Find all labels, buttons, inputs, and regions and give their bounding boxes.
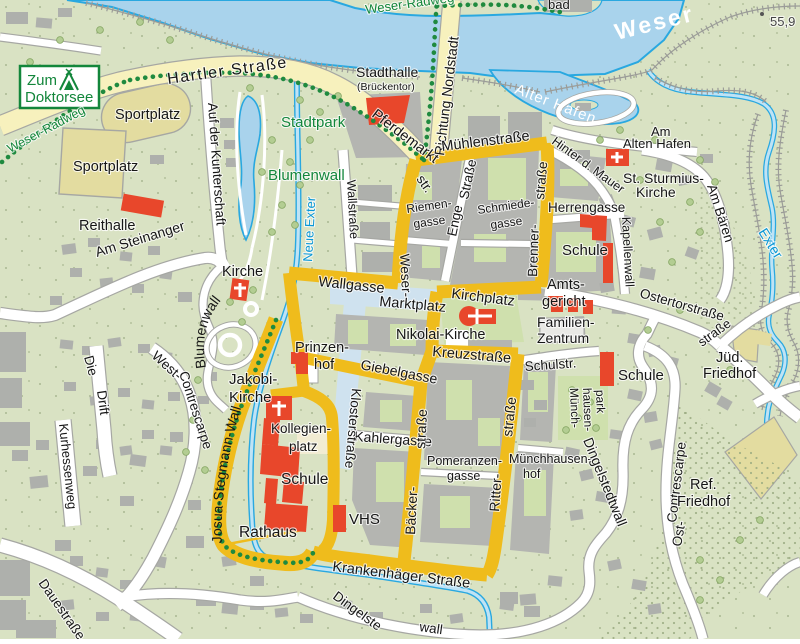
- svg-text:Schule: Schule: [562, 242, 608, 259]
- svg-text:Schule: Schule: [281, 471, 328, 488]
- svg-text:Kirche: Kirche: [222, 264, 263, 280]
- svg-text:Stadtpark: Stadtpark: [281, 114, 346, 131]
- svg-text:Weser-: Weser-: [397, 253, 414, 297]
- svg-text:gasse: gasse: [447, 469, 480, 483]
- svg-text:Bäcker-: Bäcker-: [402, 486, 421, 535]
- svg-text:straße: straße: [412, 408, 430, 449]
- svg-text:Sportplatz: Sportplatz: [115, 107, 180, 123]
- svg-text:Münchhausen-: Münchhausen-: [509, 452, 592, 466]
- svg-text:Kirche: Kirche: [229, 389, 272, 406]
- svg-text:Doktorsee: Doktorsee: [25, 89, 93, 106]
- svg-text:Schule: Schule: [618, 367, 664, 384]
- svg-text:Reithalle: Reithalle: [79, 218, 135, 234]
- svg-text:platz: platz: [289, 439, 318, 454]
- svg-text:Rathaus: Rathaus: [239, 524, 297, 541]
- svg-text:park: park: [593, 390, 608, 415]
- svg-text:Kollegien-: Kollegien-: [271, 421, 331, 436]
- svg-text:Friedhof: Friedhof: [703, 366, 757, 382]
- svg-text:bad: bad: [548, 0, 570, 12]
- svg-text:hof: hof: [523, 467, 541, 481]
- svg-text:Blumenwall: Blumenwall: [268, 167, 345, 184]
- svg-text:Stadthalle: Stadthalle: [356, 64, 418, 80]
- svg-text:Kirche: Kirche: [636, 184, 676, 200]
- svg-text:Ritter-: Ritter-: [486, 473, 505, 512]
- svg-text:Zum: Zum: [27, 72, 57, 89]
- svg-text:hof: hof: [314, 357, 335, 373]
- svg-text:Sportplatz: Sportplatz: [73, 159, 138, 175]
- svg-text:Nikolai-Kirche: Nikolai-Kirche: [396, 327, 485, 343]
- svg-text:gericht: gericht: [542, 294, 586, 310]
- svg-text:Familien-: Familien-: [537, 314, 595, 330]
- svg-text:Pomeranzen-: Pomeranzen-: [427, 454, 502, 468]
- svg-text:(Brückentor): (Brückentor): [357, 81, 415, 93]
- svg-text:Prinzen-: Prinzen-: [295, 340, 349, 356]
- svg-text:Amts-: Amts-: [547, 277, 585, 293]
- svg-text:Münch-: Münch-: [567, 388, 582, 428]
- svg-text:VHS: VHS: [349, 511, 380, 528]
- svg-text:Jakobi-: Jakobi-: [229, 371, 277, 388]
- svg-text:Zentrum: Zentrum: [537, 330, 589, 346]
- svg-text:Herrengasse: Herrengasse: [548, 200, 625, 215]
- svg-text:Brenner-: Brenner-: [525, 224, 542, 277]
- svg-text:Ref.: Ref.: [690, 477, 717, 493]
- svg-text:55,9: 55,9: [770, 14, 795, 29]
- svg-text:Jüd.: Jüd.: [716, 350, 743, 366]
- svg-text:Friedhof: Friedhof: [677, 494, 731, 510]
- svg-text:Alten Hafen: Alten Hafen: [623, 136, 691, 151]
